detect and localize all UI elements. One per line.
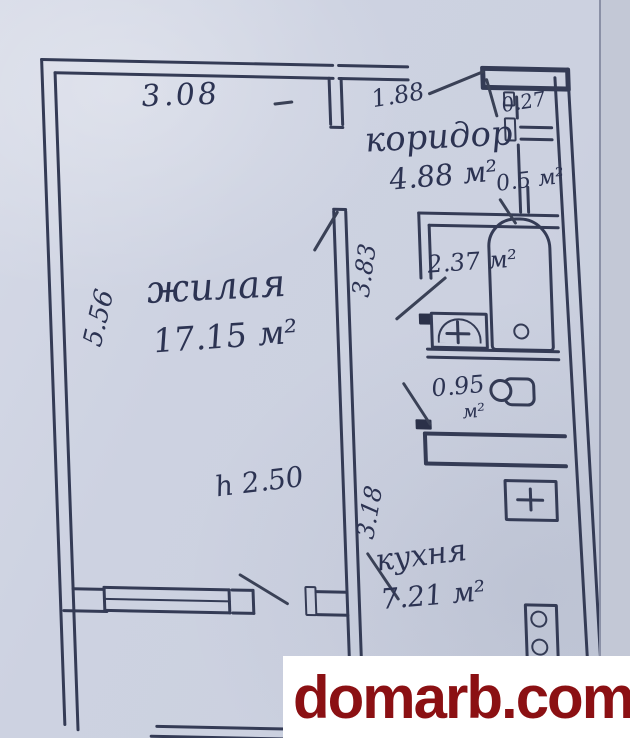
bathroom-wall	[417, 211, 422, 279]
corridor-label: коридор	[363, 116, 514, 157]
sink-cross	[516, 498, 544, 501]
stove-burner	[530, 610, 548, 627]
thick-wall	[423, 431, 428, 465]
floor-plan: 3.08 1.88 0.27 коридор 4.88 м² 0.5 м² 2.…	[40, 56, 609, 738]
wall	[329, 126, 344, 129]
page-edge	[599, 0, 630, 660]
toilet-area-value: 0.95	[430, 372, 486, 400]
wall	[328, 77, 333, 126]
dim-kitchen-left: 3.18	[353, 480, 387, 544]
window-frame	[102, 586, 106, 612]
living-area: 17.15 м²	[151, 315, 300, 358]
bathroom-wall	[417, 211, 559, 217]
dim-living-top: 3.08	[140, 80, 221, 113]
wall	[251, 589, 255, 615]
toilet-tank	[489, 379, 513, 402]
dim-living-left: 5.56	[80, 286, 119, 351]
dim-hall-mid: 3.83	[348, 239, 380, 303]
closet-shelf	[519, 126, 553, 130]
closet-area: 0.5 м²	[495, 166, 567, 196]
toilet-area-unit: м²	[461, 402, 487, 423]
bathtub-drain	[513, 323, 530, 339]
bathroom-area: 2.37 м²	[426, 247, 519, 277]
corridor-area: 4.88 м²	[387, 156, 500, 194]
thick-wall	[423, 431, 567, 438]
ceiling-height: h 2.50	[213, 463, 306, 501]
wall	[337, 64, 409, 68]
thick-wall	[424, 461, 568, 468]
window-frame	[227, 588, 231, 614]
wall	[62, 609, 108, 613]
closet-small-area: 0.27	[500, 88, 548, 115]
window	[103, 598, 231, 603]
scanned-floor-plan-page: 3.08 1.88 0.27 коридор 4.88 м² 0.5 м² 2.…	[0, 0, 630, 738]
wall	[315, 613, 349, 617]
closet-shelf	[520, 138, 554, 142]
entry-door-swing	[428, 70, 485, 95]
wall	[72, 587, 106, 591]
stove-burner	[531, 638, 549, 655]
watermark-text: domarb.com	[283, 663, 630, 732]
kitchen-area: 7.21 м²	[379, 577, 488, 614]
dim-corridor-top: 1.88	[369, 79, 426, 111]
window	[102, 586, 230, 592]
sink-cross	[445, 332, 470, 335]
window	[103, 609, 231, 615]
watermark-banner: domarb.com	[283, 656, 630, 738]
living-label: жилая	[144, 264, 287, 309]
wall	[340, 77, 345, 126]
entry-wall	[480, 66, 571, 92]
tick-mark	[273, 100, 293, 105]
bathroom-wall	[426, 356, 560, 362]
kitchen-label: кухня	[373, 536, 469, 577]
wall	[314, 590, 348, 594]
